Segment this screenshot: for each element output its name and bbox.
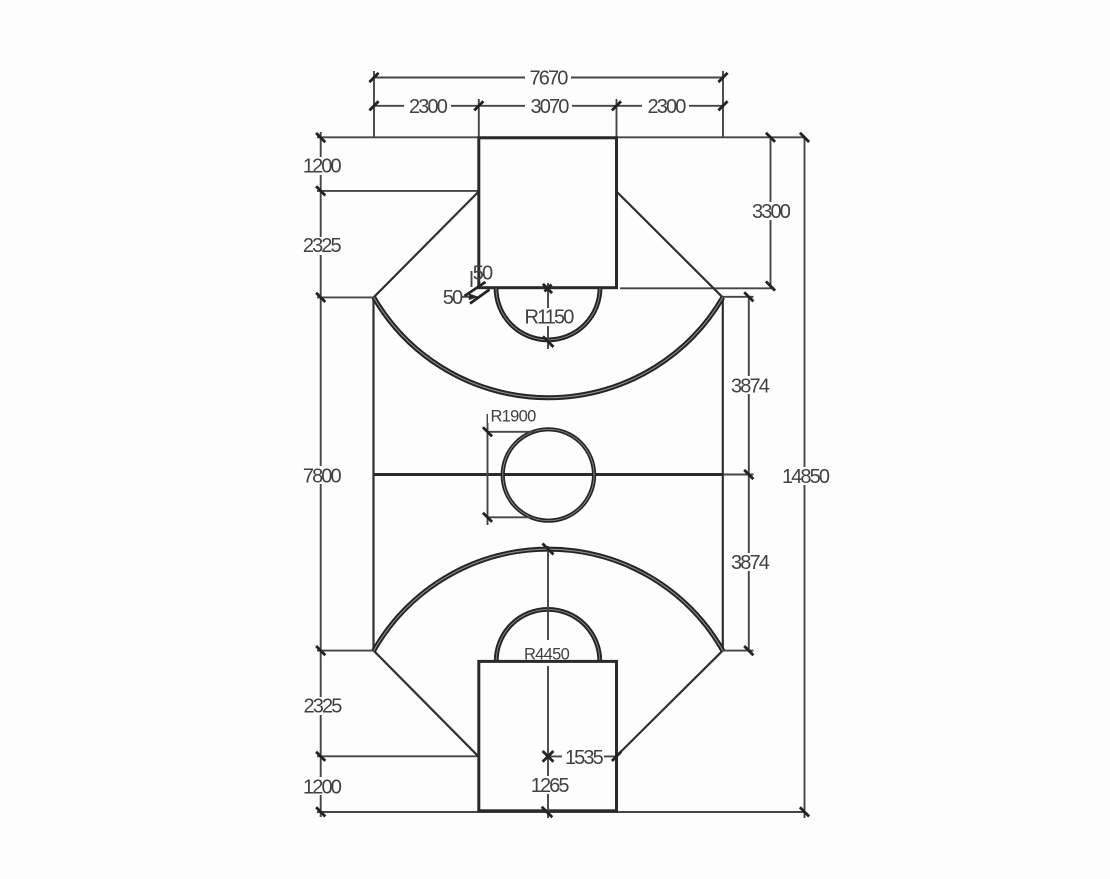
svg-text:1200: 1200: [303, 777, 342, 799]
svg-text:1265: 1265: [531, 775, 570, 797]
svg-text:7800: 7800: [303, 466, 342, 488]
svg-text:R1150: R1150: [525, 306, 575, 328]
svg-text:3300: 3300: [752, 201, 791, 223]
svg-text:3874: 3874: [731, 376, 770, 398]
svg-text:2300: 2300: [409, 96, 448, 118]
svg-text:50: 50: [443, 287, 463, 309]
svg-text:R1900: R1900: [490, 408, 536, 426]
svg-text:14850: 14850: [782, 466, 830, 488]
svg-text:2300: 2300: [648, 96, 687, 118]
svg-text:3070: 3070: [531, 96, 570, 118]
svg-text:2325: 2325: [303, 235, 342, 257]
svg-text:50: 50: [473, 263, 493, 285]
svg-text:R4450: R4450: [524, 646, 570, 664]
svg-text:1200: 1200: [303, 156, 342, 178]
svg-text:3874: 3874: [731, 552, 770, 574]
svg-text:2325: 2325: [304, 696, 343, 718]
svg-text:1535: 1535: [565, 747, 604, 769]
svg-text:7670: 7670: [530, 68, 569, 90]
